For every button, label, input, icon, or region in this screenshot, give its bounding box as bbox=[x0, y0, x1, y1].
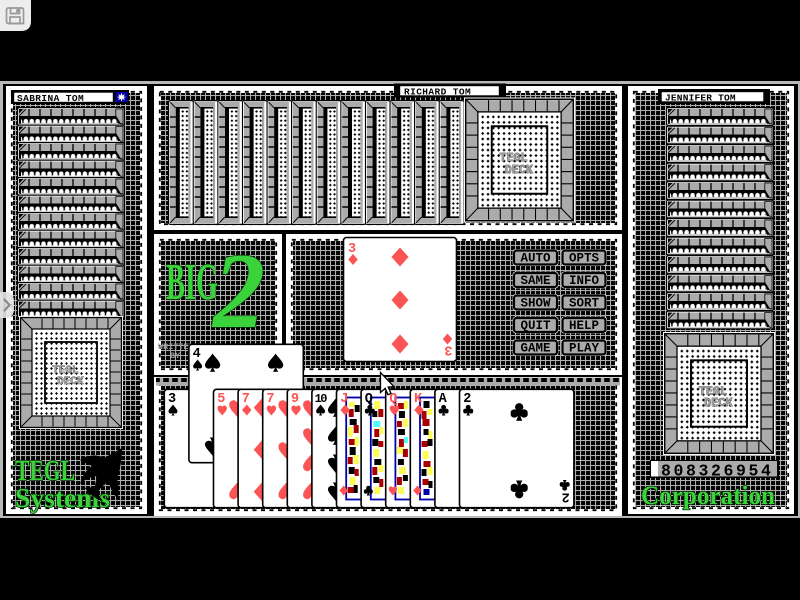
svg-text:GAME: GAME bbox=[520, 342, 550, 356]
svg-text:10: 10 bbox=[315, 392, 328, 406]
svg-text:7: 7 bbox=[266, 392, 274, 407]
svg-text:808326954: 808326954 bbox=[661, 462, 774, 481]
svg-text:BIG: BIG bbox=[166, 254, 218, 311]
svg-text:Corporation: Corporation bbox=[641, 481, 776, 510]
svg-text:3: 3 bbox=[444, 342, 452, 357]
svg-text:K: K bbox=[414, 392, 423, 407]
svg-text:SABRINA TOM: SABRINA TOM bbox=[17, 93, 84, 104]
svg-text:2: 2 bbox=[211, 232, 265, 351]
svg-text:A: A bbox=[439, 392, 448, 407]
svg-text:PLAY: PLAY bbox=[569, 342, 600, 356]
svg-text:SORT: SORT bbox=[569, 297, 600, 311]
svg-text:5: 5 bbox=[217, 392, 225, 407]
svg-text:JENNIFER TOM: JENNIFER TOM bbox=[665, 93, 736, 104]
svg-text:RICHARD TOM: RICHARD TOM bbox=[404, 87, 471, 98]
svg-text:INFO: INFO bbox=[569, 274, 600, 288]
svg-text:9: 9 bbox=[291, 392, 299, 407]
svg-text:QUIT: QUIT bbox=[520, 319, 551, 333]
svg-text:2: 2 bbox=[463, 392, 471, 407]
svg-text:3: 3 bbox=[168, 392, 176, 407]
svg-text:HELP: HELP bbox=[569, 319, 599, 333]
svg-text:BY: BY bbox=[170, 351, 181, 361]
svg-text:2: 2 bbox=[562, 489, 570, 504]
svg-text:3: 3 bbox=[348, 242, 356, 257]
svg-text:SHOW: SHOW bbox=[520, 297, 551, 311]
svg-text:7: 7 bbox=[242, 392, 250, 407]
svg-text:AUTO: AUTO bbox=[520, 252, 551, 266]
svg-text:4: 4 bbox=[193, 347, 201, 362]
svg-text:SAME: SAME bbox=[520, 274, 550, 288]
svg-text:J: J bbox=[340, 392, 348, 407]
svg-text:OPTS: OPTS bbox=[569, 252, 600, 266]
svg-text:Q: Q bbox=[365, 392, 373, 407]
